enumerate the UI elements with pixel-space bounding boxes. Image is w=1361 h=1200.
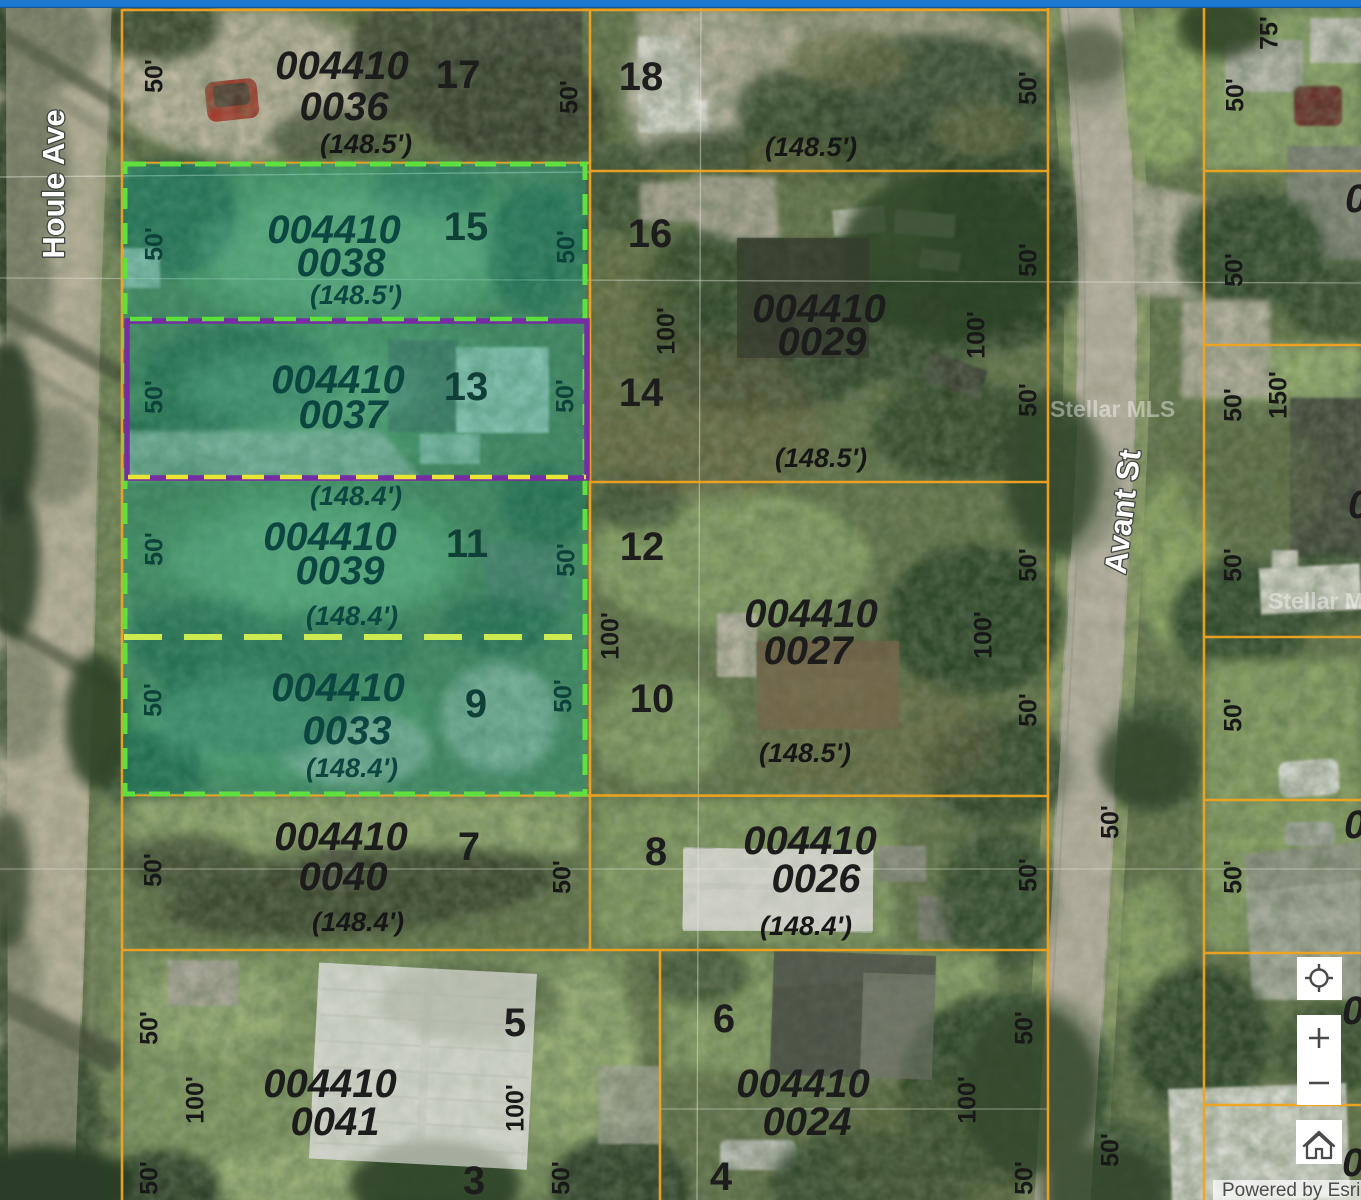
- svg-text:50': 50': [1015, 693, 1043, 727]
- svg-text:50': 50': [553, 230, 581, 264]
- svg-text:0: 0: [1342, 989, 1361, 1033]
- svg-text:(148.5'): (148.5'): [765, 132, 857, 162]
- svg-text:14: 14: [619, 371, 664, 415]
- svg-text:10: 10: [630, 677, 675, 721]
- svg-text:9: 9: [465, 682, 487, 726]
- svg-text:50': 50': [136, 1161, 164, 1195]
- svg-text:17: 17: [436, 53, 481, 97]
- svg-text:(148.5'): (148.5'): [320, 129, 412, 159]
- svg-text:50': 50': [141, 59, 169, 93]
- svg-text:50': 50': [553, 543, 581, 577]
- svg-text:4: 4: [710, 1155, 733, 1199]
- svg-text:100': 100': [502, 1084, 530, 1132]
- svg-text:(148.4'): (148.4'): [760, 911, 852, 941]
- svg-text:7: 7: [458, 825, 480, 869]
- svg-text:16: 16: [628, 212, 673, 256]
- svg-text:11: 11: [446, 522, 488, 566]
- svg-text:50': 50': [549, 860, 577, 894]
- svg-text:0029: 0029: [778, 320, 868, 364]
- svg-text:50': 50': [1222, 78, 1250, 112]
- svg-text:50': 50': [1011, 1161, 1039, 1195]
- svg-text:0033: 0033: [303, 709, 392, 753]
- svg-text:18: 18: [619, 55, 664, 99]
- svg-text:100': 100': [653, 307, 681, 355]
- svg-text:50': 50': [1011, 1011, 1039, 1045]
- svg-text:004410: 004410: [271, 666, 404, 710]
- svg-text:0037: 0037: [299, 393, 390, 437]
- svg-text:100': 100': [970, 611, 998, 659]
- svg-text:50': 50': [1220, 860, 1248, 894]
- svg-text:(148.4'): (148.4'): [306, 601, 398, 631]
- svg-text:0: 0: [1344, 803, 1361, 847]
- svg-text:50': 50': [1015, 71, 1043, 105]
- svg-text:50': 50': [141, 380, 169, 414]
- svg-text:50': 50': [552, 379, 580, 413]
- svg-text:50': 50': [556, 80, 584, 114]
- svg-text:6: 6: [713, 997, 735, 1041]
- svg-text:50': 50': [1015, 383, 1043, 417]
- svg-text:0040: 0040: [299, 855, 388, 899]
- svg-text:0041: 0041: [291, 1100, 380, 1144]
- svg-text:50': 50': [1097, 1133, 1125, 1167]
- svg-text:(148.4'): (148.4'): [312, 907, 404, 937]
- svg-text:13: 13: [444, 365, 489, 409]
- svg-text:50': 50': [1220, 698, 1248, 732]
- svg-text:50': 50': [141, 227, 169, 261]
- svg-text:50': 50': [548, 1161, 576, 1195]
- svg-text:Stellar MLS: Stellar MLS: [1268, 588, 1361, 614]
- svg-text:0027: 0027: [764, 629, 855, 673]
- svg-text:(148.5'): (148.5'): [759, 738, 851, 768]
- svg-text:50': 50': [1220, 388, 1248, 422]
- svg-text:0: 0: [1345, 177, 1361, 221]
- svg-text:(148.4'): (148.4'): [306, 753, 398, 783]
- svg-text:50': 50': [1015, 548, 1043, 582]
- svg-text:100': 100': [597, 612, 625, 660]
- svg-text:75': 75': [1256, 16, 1284, 50]
- svg-text:12: 12: [620, 525, 665, 569]
- svg-text:100': 100': [182, 1076, 210, 1124]
- svg-text:50': 50': [1097, 805, 1125, 839]
- svg-text:50': 50': [1015, 858, 1043, 892]
- svg-text:50': 50': [140, 683, 168, 717]
- svg-text:Stellar MLS: Stellar MLS: [1050, 396, 1175, 422]
- svg-text:(148.4'): (148.4'): [310, 481, 402, 511]
- svg-text:50': 50': [1220, 548, 1248, 582]
- svg-text:3: 3: [463, 1159, 485, 1200]
- svg-text:8: 8: [645, 830, 667, 874]
- svg-text:100': 100': [954, 1076, 982, 1124]
- svg-text:5: 5: [504, 1001, 526, 1045]
- svg-text:(148.5'): (148.5'): [310, 280, 402, 310]
- svg-text:0: 0: [1342, 1141, 1361, 1185]
- svg-text:50': 50': [140, 853, 168, 887]
- svg-text:0038: 0038: [297, 241, 387, 285]
- svg-text:0036: 0036: [300, 85, 390, 129]
- svg-text:0024: 0024: [763, 1100, 852, 1144]
- svg-text:0039: 0039: [296, 549, 386, 593]
- svg-text:50': 50': [1015, 243, 1043, 277]
- svg-text:50': 50': [1221, 253, 1249, 287]
- svg-text:50': 50': [136, 1011, 164, 1045]
- svg-text:004410: 004410: [274, 815, 407, 859]
- svg-text:100': 100': [963, 311, 991, 359]
- svg-text:0026: 0026: [772, 857, 862, 901]
- svg-text:(148.5'): (148.5'): [775, 443, 867, 473]
- svg-text:004410: 004410: [275, 44, 408, 88]
- svg-text:50': 50': [550, 679, 578, 713]
- svg-text:15: 15: [444, 205, 489, 249]
- svg-text:50': 50': [141, 532, 169, 566]
- svg-text:Powered by Esri: Powered by Esri: [1222, 1180, 1360, 1200]
- svg-text:0: 0: [1348, 483, 1361, 527]
- svg-text:Houle Ave: Houle Ave: [36, 109, 71, 258]
- svg-text:150': 150': [1265, 371, 1293, 419]
